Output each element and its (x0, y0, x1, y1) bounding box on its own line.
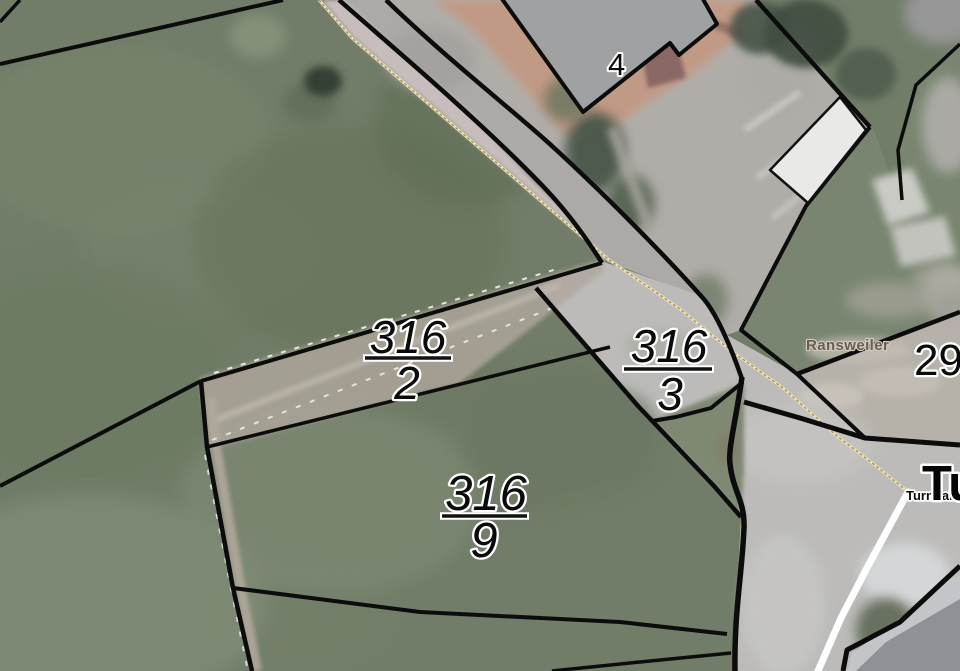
svg-text:316: 316 (631, 320, 708, 372)
svg-text:Tu: Tu (922, 457, 960, 511)
svg-text:316: 316 (445, 467, 528, 521)
svg-text:9: 9 (470, 514, 497, 568)
svg-text:4: 4 (608, 47, 625, 82)
svg-text:3: 3 (657, 368, 683, 420)
svg-text:2: 2 (393, 357, 420, 409)
svg-text:Ransweiler: Ransweiler (806, 337, 889, 354)
svg-text:316: 316 (370, 311, 447, 363)
svg-text:296: 296 (914, 336, 960, 385)
